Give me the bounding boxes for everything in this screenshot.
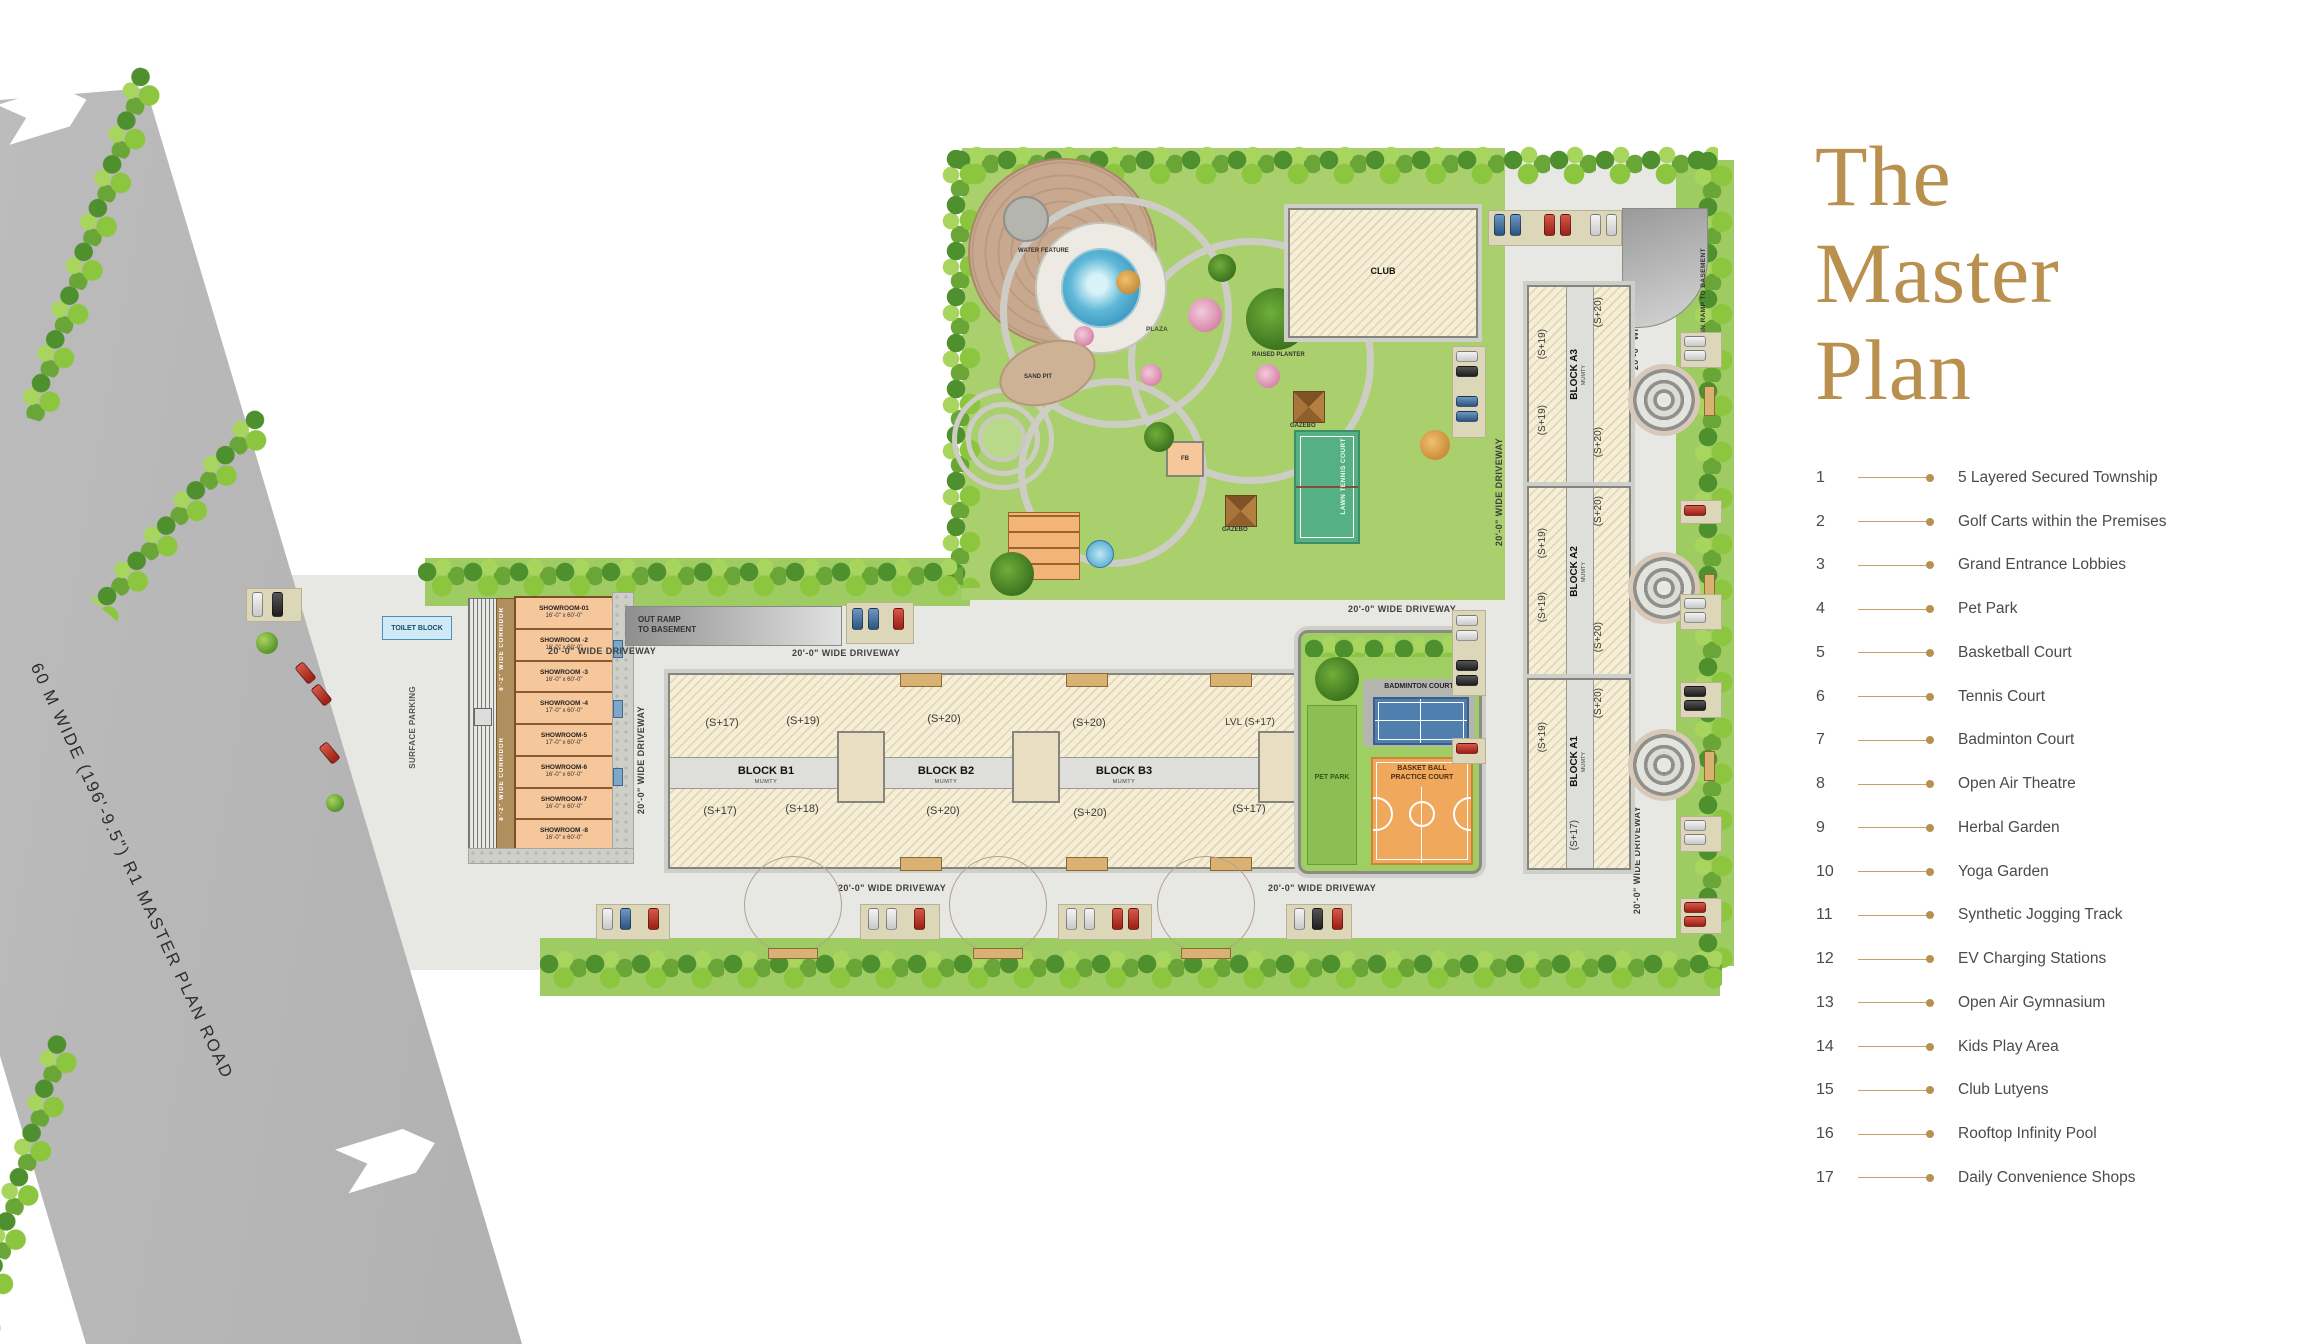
page-title-line: Master	[1815, 225, 2060, 322]
mumty-label: MUMTY	[1581, 752, 1587, 772]
wing-label: LVL (S+17)	[1206, 717, 1294, 728]
balcony-notch	[1066, 673, 1108, 687]
gazebo	[1293, 391, 1325, 423]
basketball-label-1: BASKET BALL	[1373, 765, 1471, 772]
grand-entrance-lobby	[744, 856, 842, 954]
legend-label: Pet Park	[1958, 600, 2017, 618]
legend-num: 4	[1816, 600, 1852, 618]
legend-item: 17Daily Convenience Shops	[1816, 1156, 2166, 1200]
car	[852, 608, 863, 630]
legend-line-dot	[1858, 565, 1930, 566]
legend-num: 5	[1816, 644, 1852, 662]
legend-num: 15	[1816, 1081, 1852, 1099]
building-core	[837, 731, 885, 803]
balcony-notch	[1210, 673, 1252, 687]
car	[914, 908, 925, 930]
page-title: The Master Plan	[1815, 128, 2060, 419]
legend-item: 6Tennis Court	[1816, 675, 2166, 719]
showroom-unit: SHOWROOM-716'-0" x 60'-0"	[516, 787, 612, 819]
car	[1684, 916, 1706, 927]
wing-label: (S+20)	[1059, 717, 1119, 729]
car	[1560, 214, 1571, 236]
court-center-circle	[1409, 801, 1435, 827]
car	[886, 908, 897, 930]
building-core	[1258, 731, 1298, 803]
legend-label: Grand Entrance Lobbies	[1958, 556, 2126, 574]
car	[1510, 214, 1521, 236]
legend-num: 1	[1816, 469, 1852, 487]
showroom-dim: 16'-0" x 60'-0"	[546, 835, 583, 843]
car	[1066, 908, 1077, 930]
grand-entrance-lobby	[949, 856, 1047, 954]
car	[1684, 336, 1706, 347]
legend-line-dot	[1858, 609, 1930, 610]
tree-border-bottom	[540, 950, 1722, 998]
kids-splash-pool	[1086, 540, 1114, 568]
legend-item: 5Basketball Court	[1816, 631, 2166, 675]
wing-label: (S+20)	[1593, 622, 1604, 652]
legend-label: Herbal Garden	[1958, 819, 2060, 837]
block-a1-label: BLOCK A1	[1569, 736, 1580, 787]
car	[1590, 214, 1601, 236]
wing-label: (S+20)	[1593, 427, 1604, 457]
gazebo	[1225, 495, 1257, 527]
shrub	[1315, 657, 1359, 701]
mumty-label: MUMTY	[736, 779, 796, 785]
showroom-name: SHOWROOM -8	[540, 827, 588, 835]
bench	[1181, 948, 1231, 959]
legend-line-dot	[1858, 1134, 1930, 1135]
page-title-line: The	[1815, 128, 2060, 225]
block-a3-label: BLOCK A3	[1569, 349, 1580, 400]
legend-line-dot	[1858, 696, 1930, 697]
legend-label: Tennis Court	[1958, 688, 2045, 706]
palm-bush	[1208, 254, 1236, 282]
legend-num: 14	[1816, 1038, 1852, 1056]
bench	[1704, 751, 1715, 781]
residential-tower-a2: (S+20) (S+19) (S+19) (S+20) BLOCK A2 MUM…	[1527, 486, 1631, 678]
block-b2-label: BLOCK B2	[916, 765, 976, 777]
wing-label: (S+20)	[914, 713, 974, 725]
block-a2-label: BLOCK A2	[1569, 546, 1580, 597]
wing-label: (S+20)	[1593, 297, 1604, 327]
legend-item: 13Open Air Gymnasium	[1816, 981, 2166, 1025]
balcony-notch	[1066, 857, 1108, 871]
plaza-label: PLAZA	[1146, 326, 1168, 333]
legend-line-dot	[1858, 784, 1930, 785]
driveway-label: 20'-0" WIDE DRIVEWAY	[1268, 883, 1376, 893]
mumty-label: MUMTY	[1094, 779, 1154, 785]
car	[1456, 351, 1478, 362]
showroom-unit: SHOWROOM -417'-0" x 60'-0"	[516, 691, 612, 723]
court-line	[1296, 486, 1358, 488]
car	[893, 608, 904, 630]
legend-line-dot	[1858, 1002, 1930, 1003]
wing-label: (S+20)	[1593, 688, 1604, 718]
driveway-label: 20'-0" WIDE DRIVEWAY	[838, 883, 946, 893]
car	[1084, 908, 1095, 930]
flower-bush	[1188, 298, 1222, 332]
block-b3-label: BLOCK B3	[1094, 765, 1154, 777]
pet-park-label: PET PARK	[1308, 774, 1356, 781]
car	[1332, 908, 1343, 930]
balcony-notch	[900, 857, 942, 871]
basketball-label-2: PRACTICE COURT	[1373, 774, 1471, 781]
wing-label: (S+19)	[1537, 722, 1548, 752]
legend-num: 10	[1816, 863, 1852, 881]
legend-num: 3	[1816, 556, 1852, 574]
legend-label: Kids Play Area	[1958, 1038, 2059, 1056]
legend-line-dot	[1858, 915, 1930, 916]
driveway-label: 20'-0" WIDE DRIVEWAY	[1494, 438, 1504, 546]
wing-label: (S+20)	[1593, 496, 1604, 526]
legend-line-dot	[1858, 740, 1930, 741]
driveway-label: 20'-0" WIDE DRIVEWAY	[1632, 806, 1642, 914]
showroom-name: SHOWROOM-01	[539, 605, 589, 613]
wing-label: (S+19)	[1537, 405, 1548, 435]
legend-label: Daily Convenience Shops	[1958, 1169, 2136, 1187]
showroom-dim: 16'-0" x 60'-0"	[546, 613, 583, 621]
sand-pit-label: SAND PIT	[1024, 374, 1052, 380]
out-ramp-label-1: OUT RAMP	[638, 615, 681, 624]
legend-line-dot	[1858, 827, 1930, 828]
club-building: CLUB	[1288, 208, 1478, 338]
meditation-deck	[1003, 196, 1049, 242]
fb-pavilion: FB	[1166, 441, 1204, 477]
tree	[256, 632, 278, 654]
showroom-block: SHOWROOM-0116'-0" x 60'-0" SHOWROOM -216…	[514, 596, 614, 852]
legend-line-dot	[1858, 652, 1930, 653]
legend-item: 8Open Air Theatre	[1816, 762, 2166, 806]
legend-item: 15 Layered Secured Township	[1816, 456, 2166, 500]
palm-bush	[1144, 422, 1174, 452]
car	[1684, 902, 1706, 913]
legend-num: 13	[1816, 994, 1852, 1012]
corridor-label: 8'-2" WIDE CORRIDOR	[499, 737, 505, 821]
car	[1128, 908, 1139, 930]
car	[1684, 505, 1706, 516]
car	[1456, 630, 1478, 641]
showroom-name: SHOWROOM-5	[541, 732, 587, 740]
car	[1684, 598, 1706, 609]
showroom-unit: SHOWROOM-616'-0" x 60'-0"	[516, 755, 612, 787]
shrub	[990, 552, 1034, 596]
wing-label: (S+19)	[773, 715, 833, 727]
grand-entrance-lobby	[1157, 856, 1255, 954]
legend-label: Open Air Theatre	[1958, 775, 2076, 793]
building-core	[1012, 731, 1060, 803]
lawn-tennis-label: LAWN TENNIS COURT	[1340, 438, 1347, 515]
bench	[1704, 386, 1715, 416]
wing-label: (S+18)	[772, 803, 832, 815]
wing-label: (S+17)	[1569, 820, 1580, 850]
wing-label: (S+19)	[1537, 592, 1548, 622]
legend: 15 Layered Secured Township 2Golf Carts …	[1816, 456, 2166, 1200]
legend-line-dot	[1858, 521, 1930, 522]
showroom-name: SHOWROOM -4	[540, 700, 588, 708]
car	[1112, 908, 1123, 930]
bench	[768, 948, 818, 959]
legend-item: 9Herbal Garden	[1816, 806, 2166, 850]
car	[1294, 908, 1305, 930]
car	[620, 908, 631, 930]
court-line	[1421, 787, 1422, 863]
showroom-dim: 16'-0" x 60'-0"	[546, 772, 583, 780]
block-b1-label: BLOCK B1	[736, 765, 796, 777]
wing-label: (S+19)	[1537, 329, 1548, 359]
car	[1456, 743, 1478, 754]
legend-line-dot	[1858, 959, 1930, 960]
car	[1606, 214, 1617, 236]
car	[1684, 700, 1706, 711]
car	[1456, 396, 1478, 407]
legend-item: 15Club Lutyens	[1816, 1069, 2166, 1113]
legend-label: EV Charging Stations	[1958, 950, 2106, 968]
wing-label: (S+17)	[692, 717, 752, 729]
flower-bush	[1140, 364, 1162, 386]
showroom-name: SHOWROOM -3	[540, 669, 588, 677]
showroom-name: SHOWROOM-6	[541, 764, 587, 772]
showroom-name: SHOWROOM -2	[540, 637, 588, 645]
legend-item: 2Golf Carts within the Premises	[1816, 500, 2166, 544]
legend-num: 9	[1816, 819, 1852, 837]
mumty-label: MUMTY	[1581, 562, 1587, 582]
car	[272, 592, 283, 617]
flower-bush	[1256, 364, 1280, 388]
flower-bush	[1074, 326, 1094, 346]
fb-label: FB	[1181, 456, 1189, 462]
entrance-roundabout	[1628, 729, 1700, 801]
legend-item: 16Rooftop Infinity Pool	[1816, 1112, 2166, 1156]
pet-park: PET PARK	[1307, 705, 1357, 865]
raised-planter-label: RAISED PLANTER	[1252, 352, 1305, 358]
legend-label: Open Air Gymnasium	[1958, 994, 2105, 1012]
mumty-label: MUMTY	[916, 779, 976, 785]
gazebo-label: GAZEBO	[1222, 527, 1248, 533]
basketball-practice-court: BASKET BALL PRACTICE COURT	[1371, 757, 1473, 865]
entrance-roundabout	[1628, 364, 1700, 436]
open-air-theatre	[978, 414, 1026, 462]
showroom-dim: 17'-0" x 60'-0"	[546, 708, 583, 716]
legend-label: Club Lutyens	[1958, 1081, 2048, 1099]
toilet-block-label: TOILET BLOCK	[391, 625, 443, 632]
surface-parking-label: SURFACE PARKING	[408, 686, 417, 769]
car	[1456, 615, 1478, 626]
residential-building-b: (S+17) (S+19) (S+20) (S+20) LVL (S+17) (…	[668, 673, 1298, 869]
legend-num: 17	[1816, 1169, 1852, 1187]
corridor-label: 8'-2" WIDE CORRIDOR	[499, 607, 505, 691]
car	[1456, 675, 1478, 686]
tree-border-mid	[418, 558, 963, 600]
shrub	[1116, 270, 1140, 294]
legend-num: 2	[1816, 513, 1852, 531]
legend-item: 12EV Charging Stations	[1816, 937, 2166, 981]
toilet-block: TOILET BLOCK	[382, 616, 452, 640]
car	[1684, 686, 1706, 697]
legend-item: 3Grand Entrance Lobbies	[1816, 544, 2166, 588]
out-ramp-label-2: TO BASEMENT	[638, 625, 696, 634]
gazebo-label: GAZEBO	[1290, 423, 1316, 429]
showroom-corridor: 8'-2" WIDE CORRIDOR 8'-2" WIDE CORRIDOR	[496, 598, 516, 850]
legend-num: 12	[1816, 950, 1852, 968]
legend-label: Yoga Garden	[1958, 863, 2049, 881]
residential-tower-a1: (S+20) (S+19) (S+17) BLOCK A1 MUMTY	[1527, 678, 1631, 870]
driveway-label: 20'-0" WIDE DRIVEWAY	[1348, 604, 1456, 614]
balcony-notch	[900, 673, 942, 687]
car	[648, 908, 659, 930]
legend-item: 11Synthetic Jogging Track	[1816, 894, 2166, 938]
car	[868, 608, 879, 630]
legend-num: 6	[1816, 688, 1852, 706]
legend-line-dot	[1858, 1090, 1930, 1091]
court-line	[1420, 699, 1421, 743]
legend-label: Golf Carts within the Premises	[1958, 513, 2166, 531]
legend-label: Badminton Court	[1958, 731, 2074, 749]
legend-line-dot	[1858, 1046, 1930, 1047]
bench	[973, 948, 1023, 959]
showroom-unit: SHOWROOM -816'-0" x 60'-0"	[516, 818, 612, 850]
elevator-box	[474, 708, 492, 726]
driveway-label: 20'-0" WIDE DRIVEWAY	[792, 648, 900, 658]
car	[1684, 612, 1706, 623]
car	[1494, 214, 1505, 236]
shrub	[1420, 430, 1450, 460]
showroom-unit: SHOWROOM-517'-0" x 60'-0"	[516, 723, 612, 755]
car	[1456, 366, 1478, 377]
mumty-label: MUMTY	[1581, 365, 1587, 385]
car	[1684, 820, 1706, 831]
legend-num: 7	[1816, 731, 1852, 749]
showroom-unit: SHOWROOM-0116'-0" x 60'-0"	[516, 598, 612, 628]
legend-line-dot	[1858, 477, 1930, 478]
legend-item: 14Kids Play Area	[1816, 1025, 2166, 1069]
car	[252, 592, 263, 617]
stone-border	[468, 848, 634, 864]
car	[1684, 350, 1706, 361]
legend-item: 4Pet Park	[1816, 587, 2166, 631]
tree-row	[1305, 635, 1473, 657]
wing-label: (S+17)	[690, 805, 750, 817]
car	[1544, 214, 1555, 236]
in-ramp-label: IN RAMP TO BASEMENT	[1700, 248, 1707, 332]
legend-num: 8	[1816, 775, 1852, 793]
residential-tower-a3: (S+20) (S+19) (S+19) (S+20) BLOCK A3 MUM…	[1527, 285, 1631, 485]
showroom-dim: 17'-0" x 60'-0"	[546, 740, 583, 748]
legend-num: 16	[1816, 1125, 1852, 1143]
wing-label: (S+17)	[1219, 803, 1279, 815]
water-feature-label: WATER FEATURE	[1018, 248, 1069, 254]
court-key-arc	[1371, 797, 1393, 831]
wing-label: (S+19)	[1537, 528, 1548, 558]
legend-label: Rooftop Infinity Pool	[1958, 1125, 2097, 1143]
showroom-unit: SHOWROOM -316'-0" x 60'-0"	[516, 660, 612, 692]
master-plan-page: 60 M WIDE (196'-9.5") R1 MASTER PLAN ROA…	[0, 0, 2304, 1344]
club-label: CLUB	[1290, 266, 1476, 276]
car	[1312, 908, 1323, 930]
legend-line-dot	[1858, 1177, 1930, 1178]
legend-label: Basketball Court	[1958, 644, 2072, 662]
legend-item: 7Badminton Court	[1816, 719, 2166, 763]
legend-item: 10Yoga Garden	[1816, 850, 2166, 894]
window-box	[613, 768, 623, 786]
parking-bay	[1488, 210, 1622, 246]
court-line	[1375, 720, 1467, 721]
driveway-label: 20'-0" WIDE DRIVEWAY	[548, 646, 656, 656]
car	[1456, 660, 1478, 671]
car	[1684, 834, 1706, 845]
window-box	[613, 700, 623, 718]
page-title-line: Plan	[1815, 322, 2060, 419]
tree	[326, 794, 344, 812]
out-ramp: OUT RAMP TO BASEMENT	[625, 606, 842, 646]
wing-label: (S+20)	[1060, 807, 1120, 819]
showroom-dim: 16'-0" x 60'-0"	[546, 804, 583, 812]
legend-label: 5 Layered Secured Township	[1958, 469, 2158, 487]
lawn-tennis-court: LAWN TENNIS COURT	[1294, 430, 1360, 544]
driveway-label: 20'-0" WIDE DRIVEWAY	[636, 706, 646, 814]
wing-label: (S+20)	[913, 805, 973, 817]
car	[868, 908, 879, 930]
car	[602, 908, 613, 930]
legend-num: 11	[1816, 906, 1852, 924]
showroom-name: SHOWROOM-7	[541, 796, 587, 804]
legend-line-dot	[1858, 871, 1930, 872]
court-key-arc	[1453, 797, 1473, 831]
showroom-dim: 16'-0" x 60'-0"	[546, 677, 583, 685]
car	[1456, 411, 1478, 422]
legend-label: Synthetic Jogging Track	[1958, 906, 2123, 924]
